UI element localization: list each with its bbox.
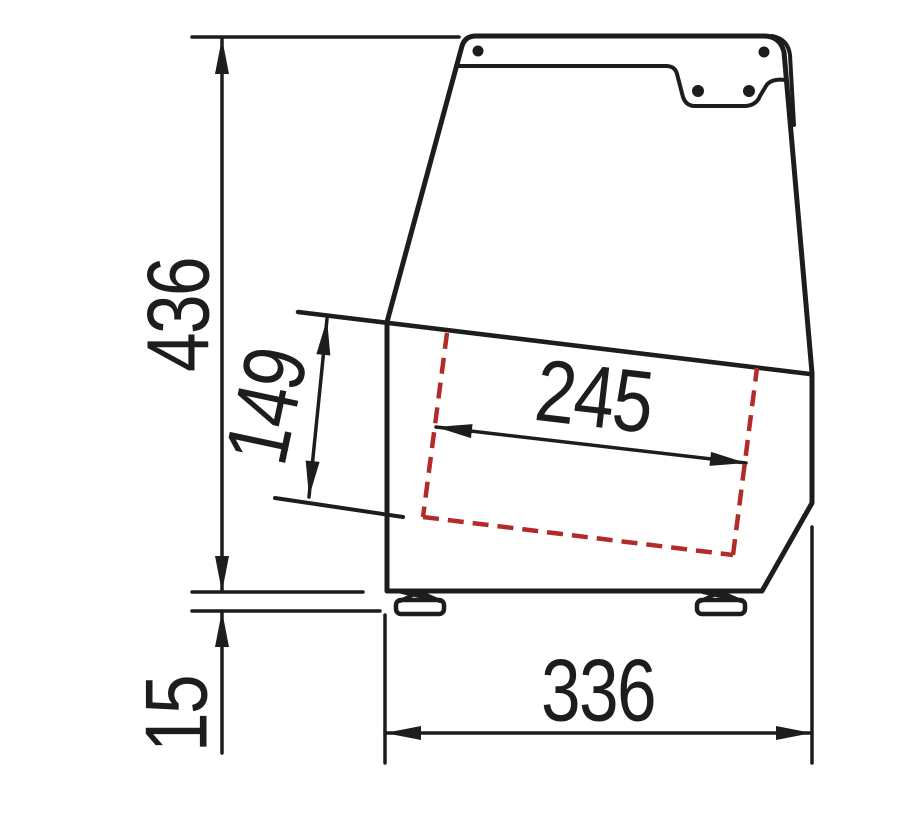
dim-label-foot-height: 15 <box>127 676 226 752</box>
well-bottom-tick <box>275 498 403 517</box>
screw-notch-left <box>692 85 704 97</box>
arrow-336-left <box>385 726 421 740</box>
screw-top-left <box>473 46 484 57</box>
arrow-336-right <box>776 726 812 740</box>
dimension-labels: 436 149 245 336 15 <box>127 258 658 752</box>
display-case-dimension-drawing: 436 149 245 336 15 <box>0 0 924 834</box>
tray-bottom-edge <box>423 517 733 555</box>
arrow-15-up <box>215 611 229 647</box>
arrow-436-up <box>215 38 229 74</box>
case-outline <box>387 36 812 591</box>
right-foot <box>697 592 745 614</box>
left-foot <box>396 592 444 614</box>
screw-notch-right <box>743 85 755 97</box>
dim-label-overall-height: 436 <box>129 258 228 372</box>
tray-left-edge <box>423 333 447 517</box>
arrow-436-down <box>215 556 229 592</box>
dim-label-tray-width: 245 <box>531 340 658 452</box>
dim-label-base-depth: 336 <box>541 641 655 740</box>
top-bracket-inner-profile <box>456 66 786 106</box>
screw-top-right <box>759 47 770 58</box>
